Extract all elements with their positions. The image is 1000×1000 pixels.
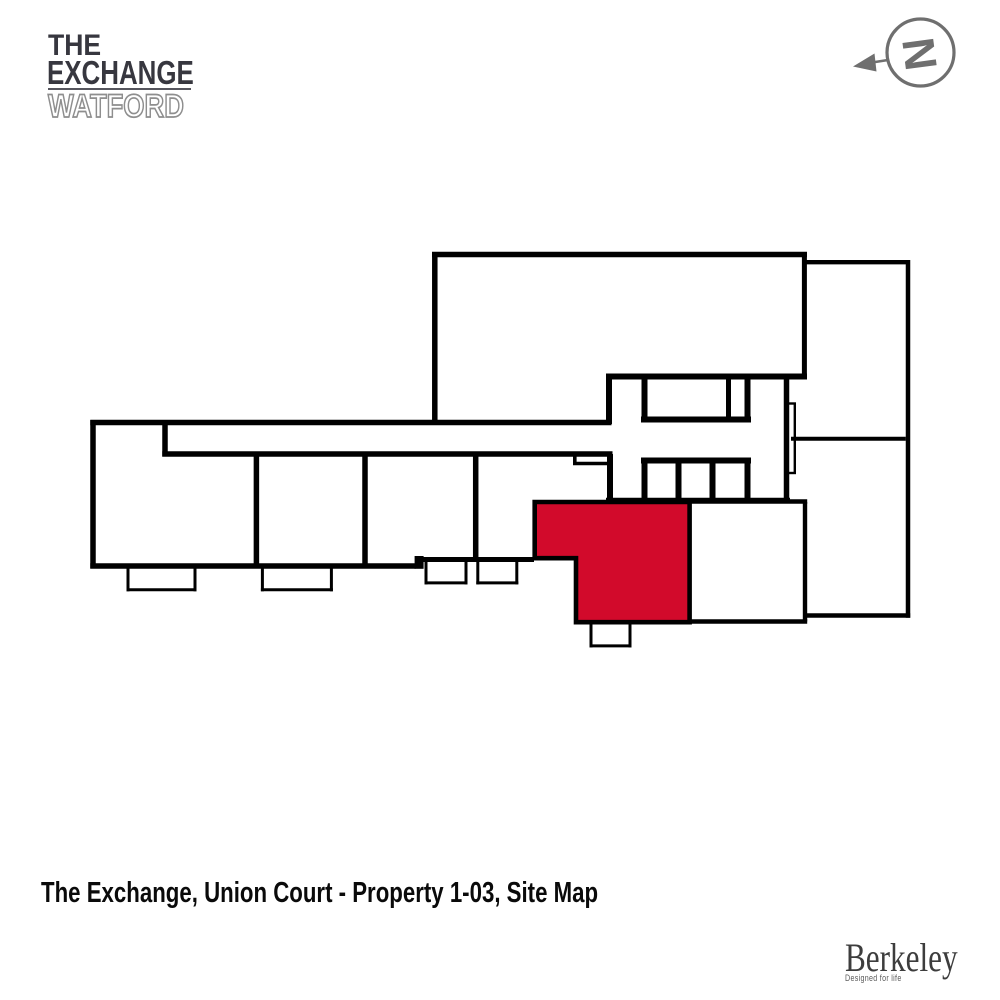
svg-text:N: N — [892, 35, 947, 74]
